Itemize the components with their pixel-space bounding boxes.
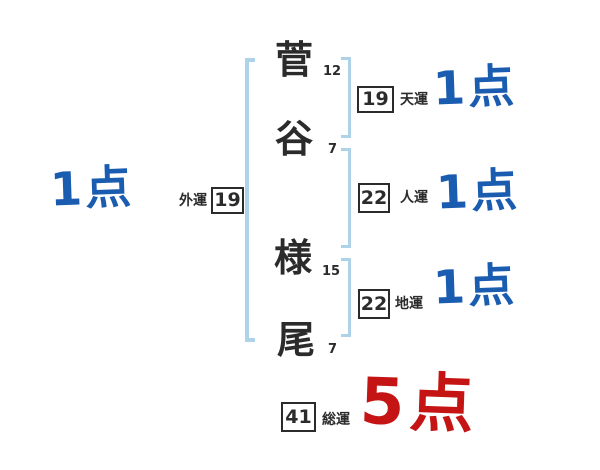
outer-luck-score: 1点 <box>49 164 135 213</box>
earth-luck-value-box: 22 <box>358 289 390 319</box>
heaven-luck-bracket <box>341 57 351 138</box>
heaven-luck-label: 天運 <box>400 93 428 107</box>
earth-luck-label: 地運 <box>395 297 423 311</box>
person-luck-label: 人運 <box>400 191 428 205</box>
name-character-3: 様 <box>274 239 312 277</box>
total-luck-value-box: 41 <box>281 402 316 432</box>
person-luck-value-box: 22 <box>358 183 390 213</box>
total-luck-label: 総運 <box>322 413 350 427</box>
total-luck-score: 5点 <box>359 370 480 438</box>
heaven-luck-score: 1点 <box>432 63 518 112</box>
name-character-1: 菅 <box>275 41 313 79</box>
person-luck-bracket <box>341 148 351 248</box>
name-fortune-diagram: 菅 12 谷 7 様 15 尾 7 19 天運 1点 22 人運 1点 22 地… <box>0 0 600 470</box>
outer-luck-label: 外運 <box>179 194 207 208</box>
earth-luck-bracket <box>341 258 351 337</box>
earth-luck-score: 1点 <box>432 262 518 311</box>
stroke-count-1: 12 <box>323 65 341 78</box>
name-character-2: 谷 <box>275 120 313 158</box>
stroke-count-4: 7 <box>328 343 337 356</box>
stroke-count-3: 15 <box>322 265 340 278</box>
name-character-4: 尾 <box>277 321 315 359</box>
stroke-count-2: 7 <box>328 143 337 156</box>
outer-luck-bracket <box>245 58 255 342</box>
outer-luck-value-box: 19 <box>211 187 244 214</box>
heaven-luck-value-box: 19 <box>357 86 394 113</box>
person-luck-score: 1点 <box>435 167 521 216</box>
